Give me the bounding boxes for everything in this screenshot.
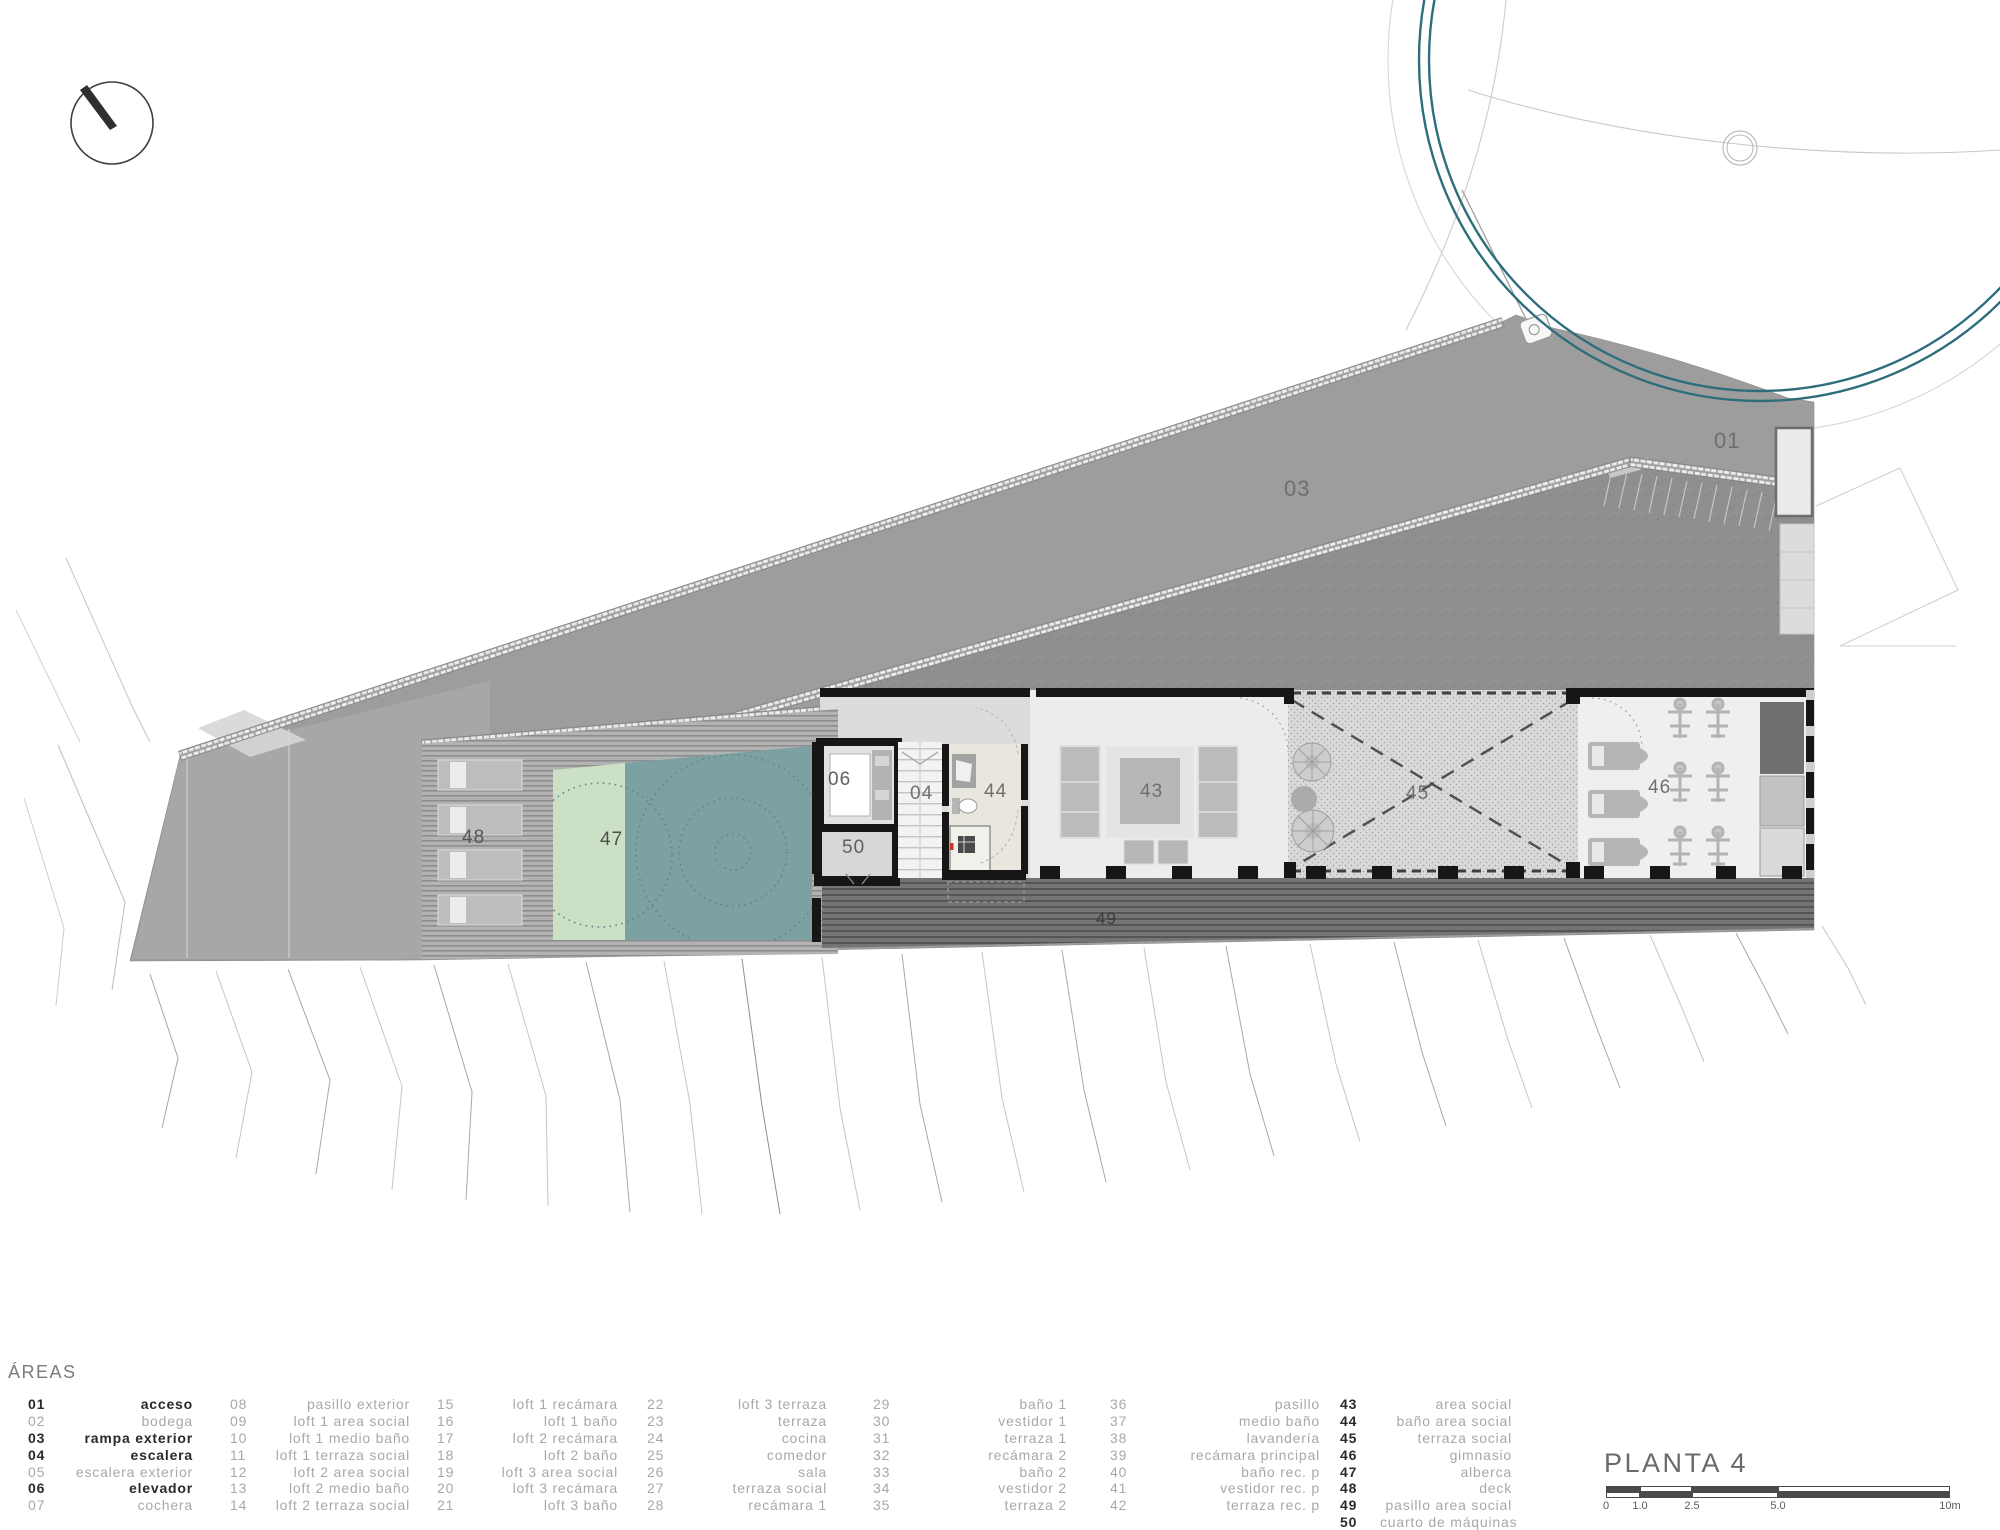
legend-item-label: medio baño bbox=[1140, 1413, 1320, 1429]
legend-item-20: 20loft 3 recámara bbox=[437, 1480, 618, 1497]
legend-item-number: 08 bbox=[230, 1396, 260, 1412]
legend-item-39: 39recámara principal bbox=[1110, 1447, 1320, 1464]
entry-door bbox=[1776, 428, 1812, 516]
legend-item-number: 43 bbox=[1340, 1396, 1370, 1412]
legend-item-label: terraza rec. p bbox=[1140, 1497, 1320, 1513]
scale-seg bbox=[1692, 1492, 1778, 1498]
interior-band bbox=[422, 688, 1814, 959]
legend-item-label: loft 3 recámara bbox=[467, 1480, 618, 1496]
scale-tick-1.0: 1.0 bbox=[1632, 1500, 1647, 1512]
legend-item-label: comedor bbox=[677, 1447, 827, 1463]
scale-seg bbox=[1606, 1492, 1640, 1498]
legend-item-label: terraza 2 bbox=[903, 1497, 1067, 1513]
legend-item-09: 09loft 1 area social bbox=[230, 1413, 410, 1430]
legend-item-number: 18 bbox=[437, 1447, 467, 1463]
legend-item-label: terraza social bbox=[677, 1480, 827, 1496]
legend-item-label: cochera bbox=[58, 1497, 193, 1513]
legend-item-number: 10 bbox=[230, 1430, 260, 1446]
entry-steps bbox=[1780, 524, 1814, 634]
legend-item-label: loft 2 terraza social bbox=[260, 1497, 410, 1513]
legend-item-30: 30vestidor 1 bbox=[873, 1413, 1067, 1430]
contour-lines bbox=[150, 926, 1866, 1214]
legend-item-18: 18loft 2 baño bbox=[437, 1447, 618, 1464]
legend-item-27: 27terraza social bbox=[647, 1480, 827, 1497]
legend-item-number: 39 bbox=[1110, 1447, 1140, 1463]
legend-item-label: baño rec. p bbox=[1140, 1464, 1320, 1480]
legend-item-label: loft 3 area social bbox=[467, 1464, 618, 1480]
room-number-45: 45 bbox=[1406, 784, 1429, 803]
legend-item-33: 33baño 2 bbox=[873, 1464, 1067, 1481]
scale-bar: 01.02.55.010m bbox=[1606, 1486, 1950, 1498]
legend-item-46: 46gimnasio bbox=[1340, 1447, 1512, 1464]
pool-shallow bbox=[553, 763, 625, 940]
room-number-43: 43 bbox=[1140, 782, 1163, 801]
legend-item-number: 22 bbox=[647, 1396, 677, 1412]
stairs bbox=[898, 742, 942, 878]
legend-item-number: 09 bbox=[230, 1413, 260, 1429]
legend-item-label: escalera bbox=[58, 1447, 193, 1463]
legend-item-11: 11loft 1 terraza social bbox=[230, 1447, 410, 1464]
legend-item-number: 13 bbox=[230, 1480, 260, 1496]
legend-item-number: 03 bbox=[28, 1430, 58, 1446]
legend-item-07: 07cochera bbox=[28, 1497, 193, 1514]
legend-item-number: 20 bbox=[437, 1480, 467, 1496]
legend-item-number: 38 bbox=[1110, 1430, 1140, 1446]
legend-item-35: 35terraza 2 bbox=[873, 1497, 1067, 1514]
legend-item-number: 28 bbox=[647, 1497, 677, 1513]
legend-item-label: acceso bbox=[58, 1396, 193, 1412]
legend-item-number: 49 bbox=[1340, 1497, 1370, 1513]
legend-item-04: 04escalera bbox=[28, 1447, 193, 1464]
legend-item-label: loft 2 medio baño bbox=[260, 1480, 410, 1496]
room-number-44: 44 bbox=[984, 782, 1007, 801]
legend-item-label: loft 1 medio baño bbox=[260, 1430, 410, 1446]
sofa-right bbox=[1198, 746, 1238, 838]
legend-item-label: lavandería bbox=[1140, 1430, 1320, 1446]
legend-item-number: 32 bbox=[873, 1447, 903, 1463]
legend-item-number: 25 bbox=[647, 1447, 677, 1463]
legend-item-number: 45 bbox=[1340, 1430, 1370, 1446]
legend-item-number: 40 bbox=[1110, 1464, 1140, 1480]
legend-item-number: 42 bbox=[1110, 1497, 1140, 1513]
legend-item-40: 40baño rec. p bbox=[1110, 1464, 1320, 1481]
legend-item-number: 23 bbox=[647, 1413, 677, 1429]
legend-item-label: pasillo area social bbox=[1370, 1497, 1512, 1513]
room-number-50: 50 bbox=[842, 838, 865, 857]
legend-item-number: 27 bbox=[647, 1480, 677, 1496]
legend-item-02: 02bodega bbox=[28, 1413, 193, 1430]
legend-item-number: 37 bbox=[1110, 1413, 1140, 1429]
treadmills bbox=[1588, 742, 1648, 866]
legend-item-17: 17loft 2 recámara bbox=[437, 1430, 618, 1447]
legend-item-21: 21loft 3 baño bbox=[437, 1497, 618, 1514]
legend-item-number: 30 bbox=[873, 1413, 903, 1429]
legend-item-number: 02 bbox=[28, 1413, 58, 1429]
legend-item-label: area social bbox=[1370, 1396, 1512, 1412]
legend-column-5: 29baño 130vestidor 131terraza 132recámar… bbox=[873, 1396, 1067, 1514]
legend-item-10: 10loft 1 medio baño bbox=[230, 1430, 410, 1447]
legend-item-label: recámara principal bbox=[1140, 1447, 1320, 1463]
legend-item-47: 47alberca bbox=[1340, 1464, 1512, 1481]
legend-item-label: elevador bbox=[58, 1480, 193, 1496]
legend-item-number: 26 bbox=[647, 1464, 677, 1480]
legend-item-label: vestidor rec. p bbox=[1140, 1480, 1320, 1496]
legend-item-41: 41vestidor rec. p bbox=[1110, 1480, 1320, 1497]
legend-column-7: 43area social44baño area social45terraza… bbox=[1340, 1396, 1512, 1530]
legend-item-label: alberca bbox=[1370, 1464, 1512, 1480]
legend-item-label: terraza 1 bbox=[903, 1430, 1067, 1446]
legend-item-number: 46 bbox=[1340, 1447, 1370, 1463]
scale-seg bbox=[1640, 1492, 1692, 1498]
legend-item-label: baño 2 bbox=[903, 1464, 1067, 1480]
legend-item-label: cuarto de máquinas bbox=[1370, 1514, 1517, 1530]
legend-item-label: rampa exterior bbox=[58, 1430, 193, 1446]
legend-item-label: vestidor 2 bbox=[903, 1480, 1067, 1496]
valve-mark bbox=[950, 843, 954, 850]
room-number-47: 47 bbox=[600, 830, 623, 849]
legend-item-25: 25comedor bbox=[647, 1447, 827, 1464]
legend-item-28: 28recámara 1 bbox=[647, 1497, 827, 1514]
legend-item-number: 15 bbox=[437, 1396, 467, 1412]
legend-item-number: 34 bbox=[873, 1480, 903, 1496]
gym-cabinet-dark bbox=[1760, 702, 1804, 774]
legend-item-label: terraza bbox=[677, 1413, 827, 1429]
legend-item-label: gimnasio bbox=[1370, 1447, 1512, 1463]
legend-column-2: 08pasillo exterior09loft 1 area social10… bbox=[230, 1396, 410, 1514]
legend-item-number: 16 bbox=[437, 1413, 467, 1429]
legend-item-label: terraza social bbox=[1370, 1430, 1512, 1446]
legend-item-label: cocina bbox=[677, 1430, 827, 1446]
floor-plan bbox=[0, 0, 2000, 1530]
legend-column-3: 15loft 1 recámara16loft 1 baño17loft 2 r… bbox=[437, 1396, 618, 1514]
legend-item-label: recámara 1 bbox=[677, 1497, 827, 1513]
plant-pot bbox=[1291, 786, 1317, 812]
legend-item-number: 17 bbox=[437, 1430, 467, 1446]
legend-item-36: 36pasillo bbox=[1110, 1396, 1320, 1413]
legend-item-label: recámara 2 bbox=[903, 1447, 1067, 1463]
legend-column-1: 01acceso02bodega03rampa exterior04escale… bbox=[28, 1396, 193, 1514]
legend-item-label: loft 1 area social bbox=[260, 1413, 410, 1429]
room-number-46: 46 bbox=[1648, 778, 1671, 797]
room-number-49: 49 bbox=[1096, 910, 1117, 927]
legend-item-44: 44baño area social bbox=[1340, 1413, 1512, 1430]
legend-item-24: 24cocina bbox=[647, 1430, 827, 1447]
plan-title: PLANTA 4 bbox=[1604, 1448, 1748, 1479]
site-boundary bbox=[1816, 468, 1958, 646]
legend-item-05: 05escalera exterior bbox=[28, 1464, 193, 1481]
sofa-left bbox=[1060, 746, 1100, 838]
legend-item-label: bodega bbox=[58, 1413, 193, 1429]
legend-item-08: 08pasillo exterior bbox=[230, 1396, 410, 1413]
scale-tick-2.5: 2.5 bbox=[1684, 1500, 1699, 1512]
legend-item-number: 21 bbox=[437, 1497, 467, 1513]
legend-item-number: 14 bbox=[230, 1497, 260, 1513]
legend-item-03: 03rampa exterior bbox=[28, 1430, 193, 1447]
legend-item-32: 32recámara 2 bbox=[873, 1447, 1067, 1464]
legend-item-label: deck bbox=[1370, 1480, 1512, 1496]
legend-item-number: 36 bbox=[1110, 1396, 1140, 1412]
legend-item-number: 47 bbox=[1340, 1464, 1370, 1480]
legend-item-label: baño area social bbox=[1370, 1413, 1512, 1429]
room-47-alberca bbox=[625, 746, 812, 940]
legend-item-49: 49pasillo area social bbox=[1340, 1497, 1512, 1514]
legend-item-label: loft 1 baño bbox=[467, 1413, 618, 1429]
legend-item-number: 41 bbox=[1110, 1480, 1140, 1496]
legend-item-label: loft 2 baño bbox=[467, 1447, 618, 1463]
scale-seg bbox=[1778, 1492, 1950, 1498]
room-number-01: 01 bbox=[1714, 430, 1740, 452]
legend-item-label: loft 1 terraza social bbox=[260, 1447, 410, 1463]
legend-item-34: 34vestidor 2 bbox=[873, 1480, 1067, 1497]
scale-tick-5.0: 5.0 bbox=[1770, 1500, 1785, 1512]
legend-item-number: 01 bbox=[28, 1396, 58, 1412]
legend-item-label: loft 3 baño bbox=[467, 1497, 618, 1513]
legend-header: ÁREAS bbox=[8, 1362, 77, 1383]
legend-item-number: 19 bbox=[437, 1464, 467, 1480]
legend-item-38: 38lavandería bbox=[1110, 1430, 1320, 1447]
legend-item-label: loft 3 terraza bbox=[677, 1396, 827, 1412]
legend-item-label: escalera exterior bbox=[58, 1464, 193, 1480]
legend-item-37: 37medio baño bbox=[1110, 1413, 1320, 1430]
legend-item-number: 50 bbox=[1340, 1514, 1370, 1530]
legend-item-label: vestidor 1 bbox=[903, 1413, 1067, 1429]
legend-item-15: 15loft 1 recámara bbox=[437, 1396, 618, 1413]
legend-item-number: 04 bbox=[28, 1447, 58, 1463]
scale-tick-10m: 10m bbox=[1939, 1500, 1960, 1512]
legend-item-14: 14loft 2 terraza social bbox=[230, 1497, 410, 1514]
legend-item-label: pasillo exterior bbox=[260, 1396, 410, 1412]
room-number-48: 48 bbox=[462, 828, 485, 847]
legend-item-42: 42terraza rec. p bbox=[1110, 1497, 1320, 1514]
legend-item-43: 43area social bbox=[1340, 1396, 1512, 1413]
legend-item-23: 23terraza bbox=[647, 1413, 827, 1430]
legend-item-number: 24 bbox=[647, 1430, 677, 1446]
north-arrow-icon bbox=[71, 82, 153, 164]
legend-item-label: loft 2 area social bbox=[260, 1464, 410, 1480]
legend-item-number: 06 bbox=[28, 1480, 58, 1496]
legend-item-number: 12 bbox=[230, 1464, 260, 1480]
legend-item-label: baño 1 bbox=[903, 1396, 1067, 1412]
room-49-pasillo bbox=[822, 878, 1814, 948]
legend-item-01: 01acceso bbox=[28, 1396, 193, 1413]
legend-item-number: 48 bbox=[1340, 1480, 1370, 1496]
legend-column-4: 22loft 3 terraza23terraza24cocina25comed… bbox=[647, 1396, 827, 1514]
legend-item-number: 44 bbox=[1340, 1413, 1370, 1429]
room-number-06: 06 bbox=[828, 770, 851, 789]
scale-tick-0: 0 bbox=[1603, 1500, 1609, 1512]
legend-item-26: 26sala bbox=[647, 1464, 827, 1481]
legend-column-6: 36pasillo37medio baño38lavandería39recám… bbox=[1110, 1396, 1320, 1514]
legend-item-22: 22loft 3 terraza bbox=[647, 1396, 827, 1413]
legend-item-19: 19loft 3 area social bbox=[437, 1464, 618, 1481]
legend-item-number: 29 bbox=[873, 1396, 903, 1412]
legend-item-16: 16loft 1 baño bbox=[437, 1413, 618, 1430]
room-number-03: 03 bbox=[1284, 478, 1310, 500]
legend-item-number: 33 bbox=[873, 1464, 903, 1480]
drawing-sheet: 010306045044434546474849 ÁREAS 01acceso0… bbox=[0, 0, 2000, 1530]
legend-item-number: 11 bbox=[230, 1447, 260, 1463]
legend-item-13: 13loft 2 medio baño bbox=[230, 1480, 410, 1497]
legend-item-number: 07 bbox=[28, 1497, 58, 1513]
legend-item-29: 29baño 1 bbox=[873, 1396, 1067, 1413]
room-number-04: 04 bbox=[910, 784, 933, 803]
legend-item-48: 48deck bbox=[1340, 1480, 1512, 1497]
legend-item-31: 31terraza 1 bbox=[873, 1430, 1067, 1447]
legend-item-50: 50cuarto de máquinas bbox=[1340, 1514, 1512, 1530]
site-marker-circle bbox=[1723, 131, 1757, 165]
gym-cabinet-mid bbox=[1760, 776, 1804, 826]
legend-item-number: 35 bbox=[873, 1497, 903, 1513]
legend-item-12: 12loft 2 area social bbox=[230, 1464, 410, 1481]
legend-item-06: 06elevador bbox=[28, 1480, 193, 1497]
legend-item-label: loft 2 recámara bbox=[467, 1430, 618, 1446]
legend-item-label: pasillo bbox=[1140, 1396, 1320, 1412]
legend-item-45: 45terraza social bbox=[1340, 1430, 1512, 1447]
legend-item-number: 05 bbox=[28, 1464, 58, 1480]
legend-item-label: loft 1 recámara bbox=[467, 1396, 618, 1412]
legend-item-label: sala bbox=[677, 1464, 827, 1480]
legend-item-number: 31 bbox=[873, 1430, 903, 1446]
